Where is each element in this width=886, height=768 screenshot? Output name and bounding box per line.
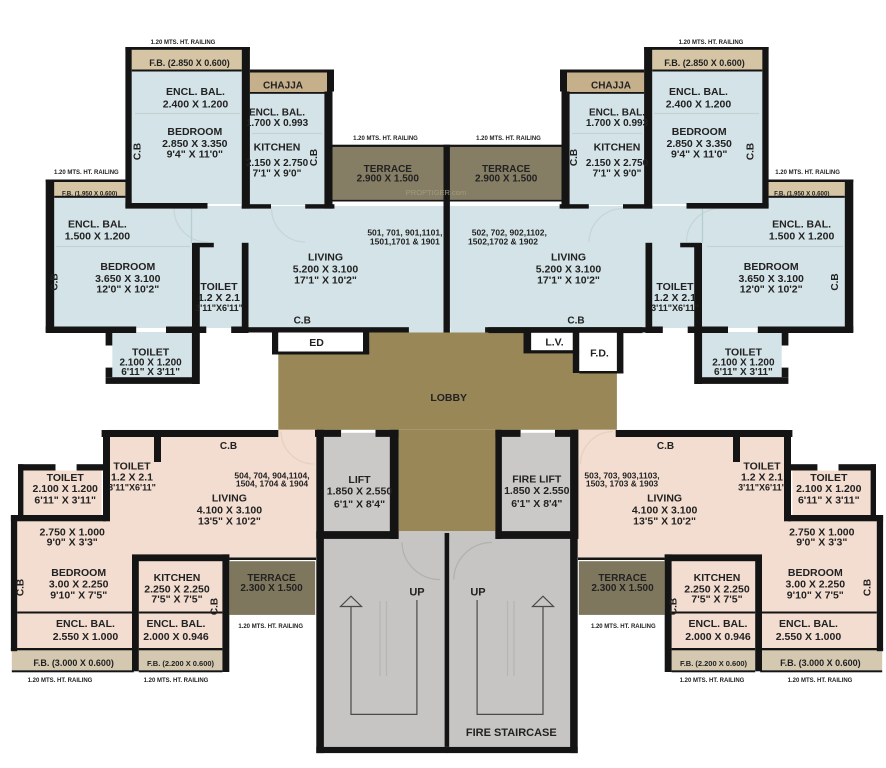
svg-text:LIVING: LIVING (212, 493, 247, 505)
svg-text:2.000 X 0.946: 2.000 X 0.946 (685, 631, 751, 643)
svg-text:C.B: C.B (567, 316, 584, 327)
svg-text:C.B: C.B (294, 316, 311, 327)
svg-text:13'5" X 10'2": 13'5" X 10'2" (633, 516, 696, 528)
svg-text:KITCHEN: KITCHEN (154, 572, 201, 584)
svg-text:C.B: C.B (133, 143, 144, 160)
svg-text:CHAJJA: CHAJJA (263, 81, 303, 92)
svg-text:2.550 X 1.000: 2.550 X 1.000 (776, 631, 842, 643)
svg-text:2.150 X 2.750: 2.150 X 2.750 (586, 158, 649, 169)
svg-text:UP: UP (470, 587, 485, 599)
svg-text:BEDROOM: BEDROOM (672, 126, 727, 138)
svg-text:3'11"X6'11": 3'11"X6'11" (651, 303, 699, 313)
svg-text:ENCL. BAL.: ENCL. BAL. (166, 86, 225, 98)
svg-text:C.B: C.B (50, 273, 61, 290)
svg-text:1.20 MTS. HT. RAILING: 1.20 MTS. HT. RAILING (54, 170, 119, 176)
svg-text:9'0" X 3'3": 9'0" X 3'3" (796, 537, 847, 549)
svg-text:1502,1702 & 1902: 1502,1702 & 1902 (468, 237, 538, 247)
svg-text:1.20 MTS. HT. RAILING: 1.20 MTS. HT. RAILING (353, 136, 418, 142)
svg-text:13'5" X 10'2": 13'5" X 10'2" (198, 516, 261, 528)
svg-text:F.D.: F.D. (590, 348, 609, 360)
svg-text:C.B: C.B (746, 143, 757, 160)
svg-text:1.850 X 2.550: 1.850 X 2.550 (504, 485, 570, 497)
svg-text:2.000 X 0.946: 2.000 X 0.946 (143, 631, 209, 643)
svg-text:2.550 X 1.000: 2.550 X 1.000 (53, 631, 119, 643)
svg-text:6'11" X 3'11": 6'11" X 3'11" (714, 367, 773, 378)
svg-text:ED: ED (309, 337, 324, 349)
svg-text:C.B: C.B (16, 579, 27, 596)
svg-text:6'1" X 8'4": 6'1" X 8'4" (511, 498, 562, 510)
svg-text:7'5" X 7'5": 7'5" X 7'5" (691, 594, 742, 606)
svg-text:F.B. (2.850 X 0.600): F.B. (2.850 X 0.600) (149, 58, 230, 68)
svg-text:F.B. (2.200 X 0.600): F.B. (2.200 X 0.600) (680, 659, 748, 668)
svg-text:6'1" X 8'4": 6'1" X 8'4" (334, 499, 385, 511)
svg-text:ENCL. BAL.: ENCL. BAL. (68, 219, 127, 231)
svg-text:BEDROOM: BEDROOM (51, 567, 106, 579)
svg-text:2.300 X 1.500: 2.300 X 1.500 (240, 583, 303, 594)
svg-text:1.20 MTS. HT. RAILING: 1.20 MTS. HT. RAILING (591, 624, 656, 630)
svg-text:ENCL. BAL.: ENCL. BAL. (779, 618, 838, 630)
svg-text:BEDROOM: BEDROOM (167, 126, 222, 138)
svg-text:1501,1701 & 1901: 1501,1701 & 1901 (370, 237, 440, 247)
svg-text:LIVING: LIVING (551, 252, 586, 264)
svg-text:1.20 MTS. HT. RAILING: 1.20 MTS. HT. RAILING (144, 678, 209, 684)
svg-text:BEDROOM: BEDROOM (100, 261, 155, 273)
svg-text:C.B: C.B (657, 441, 674, 452)
svg-text:7'1" X 9'0": 7'1" X 9'0" (253, 169, 302, 180)
svg-text:FIRE LIFT: FIRE LIFT (512, 474, 562, 486)
svg-text:2.400 X 1.200: 2.400 X 1.200 (666, 99, 732, 111)
svg-text:CHAJJA: CHAJJA (591, 81, 631, 92)
svg-text:9'4" X 11'0": 9'4" X 11'0" (167, 149, 223, 161)
svg-text:3'11"X6'11": 3'11"X6'11" (195, 303, 243, 313)
svg-text:ENCL. BAL.: ENCL. BAL. (56, 618, 115, 630)
svg-text:LIFT: LIFT (348, 474, 371, 486)
svg-text:2.900 X 1.500: 2.900 X 1.500 (357, 174, 420, 185)
svg-text:C.B: C.B (220, 441, 237, 452)
svg-text:9'4" X 11'0": 9'4" X 11'0" (671, 149, 727, 161)
svg-text:1.20 MTS. HT. RAILING: 1.20 MTS. HT. RAILING (476, 136, 541, 142)
svg-text:C.B: C.B (862, 579, 873, 596)
svg-text:ENCL. BAL.: ENCL. BAL. (589, 108, 645, 119)
svg-text:1.20 MTS. HT. RAILING: 1.20 MTS. HT. RAILING (28, 678, 93, 684)
svg-text:F.B. (1.950 X 0.600): F.B. (1.950 X 0.600) (774, 190, 829, 197)
svg-text:ENCL. BAL.: ENCL. BAL. (772, 219, 831, 231)
svg-text:UP: UP (409, 587, 424, 599)
svg-text:2.150 X 2.750: 2.150 X 2.750 (246, 158, 309, 169)
svg-text:ENCL. BAL.: ENCL. BAL. (689, 618, 748, 630)
svg-text:ENCL. BAL.: ENCL. BAL. (249, 108, 305, 119)
svg-text:6'11" X 3'11": 6'11" X 3'11" (121, 367, 180, 378)
svg-text:2.900 X 1.500: 2.900 X 1.500 (475, 174, 538, 185)
svg-text:F.B. (1.950 X 0.600): F.B. (1.950 X 0.600) (62, 190, 117, 197)
svg-text:1.850 X 2.550: 1.850 X 2.550 (327, 486, 393, 498)
svg-text:1504, 1704 & 1904: 1504, 1704 & 1904 (236, 479, 309, 489)
svg-text:9'0" X 3'3": 9'0" X 3'3" (47, 537, 98, 549)
svg-text:C.B: C.B (569, 149, 580, 166)
svg-text:1.700 X 0.993: 1.700 X 0.993 (246, 118, 309, 129)
svg-text:1.500 X 1.200: 1.500 X 1.200 (65, 231, 131, 243)
svg-text:C.B: C.B (210, 598, 221, 615)
svg-text:F.B. (2.200 X 0.600): F.B. (2.200 X 0.600) (147, 659, 215, 668)
svg-text:1.20 MTS. HT. RAILING: 1.20 MTS. HT. RAILING (238, 624, 303, 630)
svg-text:1.700 X 0.993: 1.700 X 0.993 (586, 118, 649, 129)
svg-text:1.20 MTS. HT. RAILING: 1.20 MTS. HT. RAILING (679, 40, 744, 46)
svg-text:1.500 X 1.200: 1.500 X 1.200 (769, 231, 835, 243)
svg-text:17'1" X 10'2": 17'1" X 10'2" (537, 275, 600, 287)
svg-text:12'0" X 10'2": 12'0" X 10'2" (96, 284, 159, 296)
svg-text:1.20 MTS. HT. RAILING: 1.20 MTS. HT. RAILING (788, 678, 853, 684)
svg-text:C.B: C.B (830, 273, 841, 290)
svg-text:L.V.: L.V. (545, 337, 563, 349)
svg-text:KITCHEN: KITCHEN (254, 142, 301, 154)
svg-text:7'5" X 7'5": 7'5" X 7'5" (151, 594, 202, 606)
svg-text:FIRE STAIRCASE: FIRE STAIRCASE (466, 727, 557, 739)
svg-text:7'1" X 9'0": 7'1" X 9'0" (593, 169, 642, 180)
svg-text:1.20 MTS. HT. RAILING: 1.20 MTS. HT. RAILING (775, 170, 840, 176)
svg-text:C.B: C.B (309, 149, 320, 166)
svg-text:12'0" X 10'2": 12'0" X 10'2" (740, 284, 803, 296)
svg-text:PROPTIGER.com: PROPTIGER.com (406, 188, 466, 197)
svg-text:F.B. (3.000 X 0.600): F.B. (3.000 X 0.600) (33, 658, 114, 668)
svg-text:ENCL. BAL.: ENCL. BAL. (669, 86, 728, 98)
svg-text:BEDROOM: BEDROOM (744, 261, 799, 273)
svg-text:3'11"X6'11": 3'11"X6'11" (738, 483, 786, 493)
svg-text:3'11"X6'11": 3'11"X6'11" (108, 483, 156, 493)
svg-text:KITCHEN: KITCHEN (694, 572, 741, 584)
svg-text:LOBBY: LOBBY (430, 392, 467, 404)
svg-text:2.300 X 1.500: 2.300 X 1.500 (591, 583, 654, 594)
svg-text:9'10" X 7'5": 9'10" X 7'5" (50, 590, 107, 602)
svg-text:LIVING: LIVING (647, 493, 682, 505)
svg-text:2.100 X 1.200: 2.100 X 1.200 (796, 483, 862, 495)
svg-text:1.20 MTS. HT. RAILING: 1.20 MTS. HT. RAILING (151, 40, 216, 46)
svg-text:6'11" X 3'11": 6'11" X 3'11" (34, 495, 96, 507)
svg-text:F.B. (3.000 X 0.600): F.B. (3.000 X 0.600) (780, 658, 861, 668)
svg-text:ENCL. BAL.: ENCL. BAL. (147, 618, 206, 630)
svg-text:BEDROOM: BEDROOM (788, 567, 843, 579)
svg-text:2.100 X 1.200: 2.100 X 1.200 (33, 483, 99, 495)
svg-text:1503, 1703 & 1903: 1503, 1703 & 1903 (586, 479, 659, 489)
svg-text:9'10" X 7'5": 9'10" X 7'5" (787, 590, 844, 602)
svg-text:KITCHEN: KITCHEN (594, 142, 641, 154)
svg-text:LIVING: LIVING (308, 252, 343, 264)
svg-text:6'11" X 3'11": 6'11" X 3'11" (798, 495, 860, 507)
svg-text:F.B. (2.850 X 0.600): F.B. (2.850 X 0.600) (664, 58, 745, 68)
svg-text:C.B: C.B (669, 598, 680, 615)
svg-text:2.400 X 1.200: 2.400 X 1.200 (163, 99, 229, 111)
svg-text:17'1" X 10'2": 17'1" X 10'2" (294, 275, 357, 287)
svg-text:1.20 MTS. HT. RAILING: 1.20 MTS. HT. RAILING (680, 678, 745, 684)
